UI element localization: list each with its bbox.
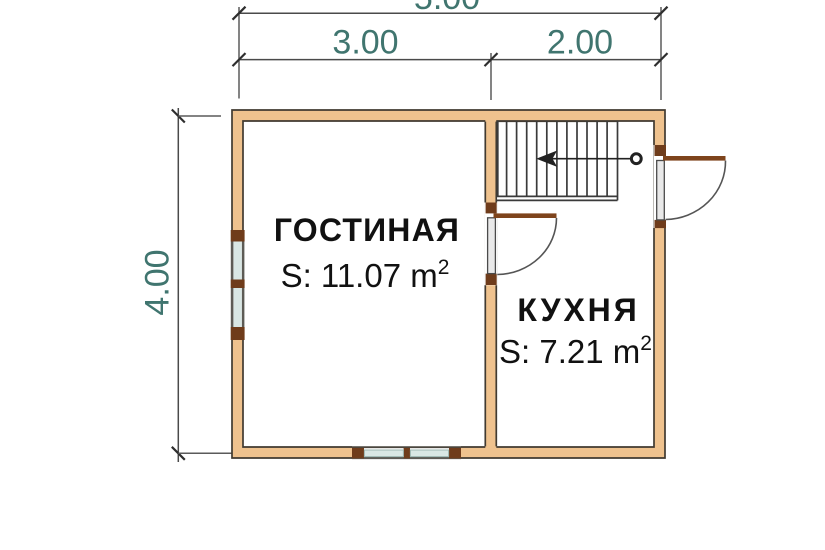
svg-text:5.00: 5.00: [414, 0, 480, 17]
svg-text:КУХНЯ: КУХНЯ: [517, 292, 639, 328]
svg-text:3.00: 3.00: [332, 24, 398, 62]
svg-text:2.00: 2.00: [547, 24, 613, 62]
svg-text:S: 7.21 m2: S: 7.21 m2: [499, 332, 652, 370]
svg-text:4.00: 4.00: [139, 249, 177, 315]
svg-text:ГОСТИНАЯ: ГОСТИНАЯ: [274, 212, 460, 248]
svg-text:S: 11.07 m2: S: 11.07 m2: [281, 256, 450, 294]
